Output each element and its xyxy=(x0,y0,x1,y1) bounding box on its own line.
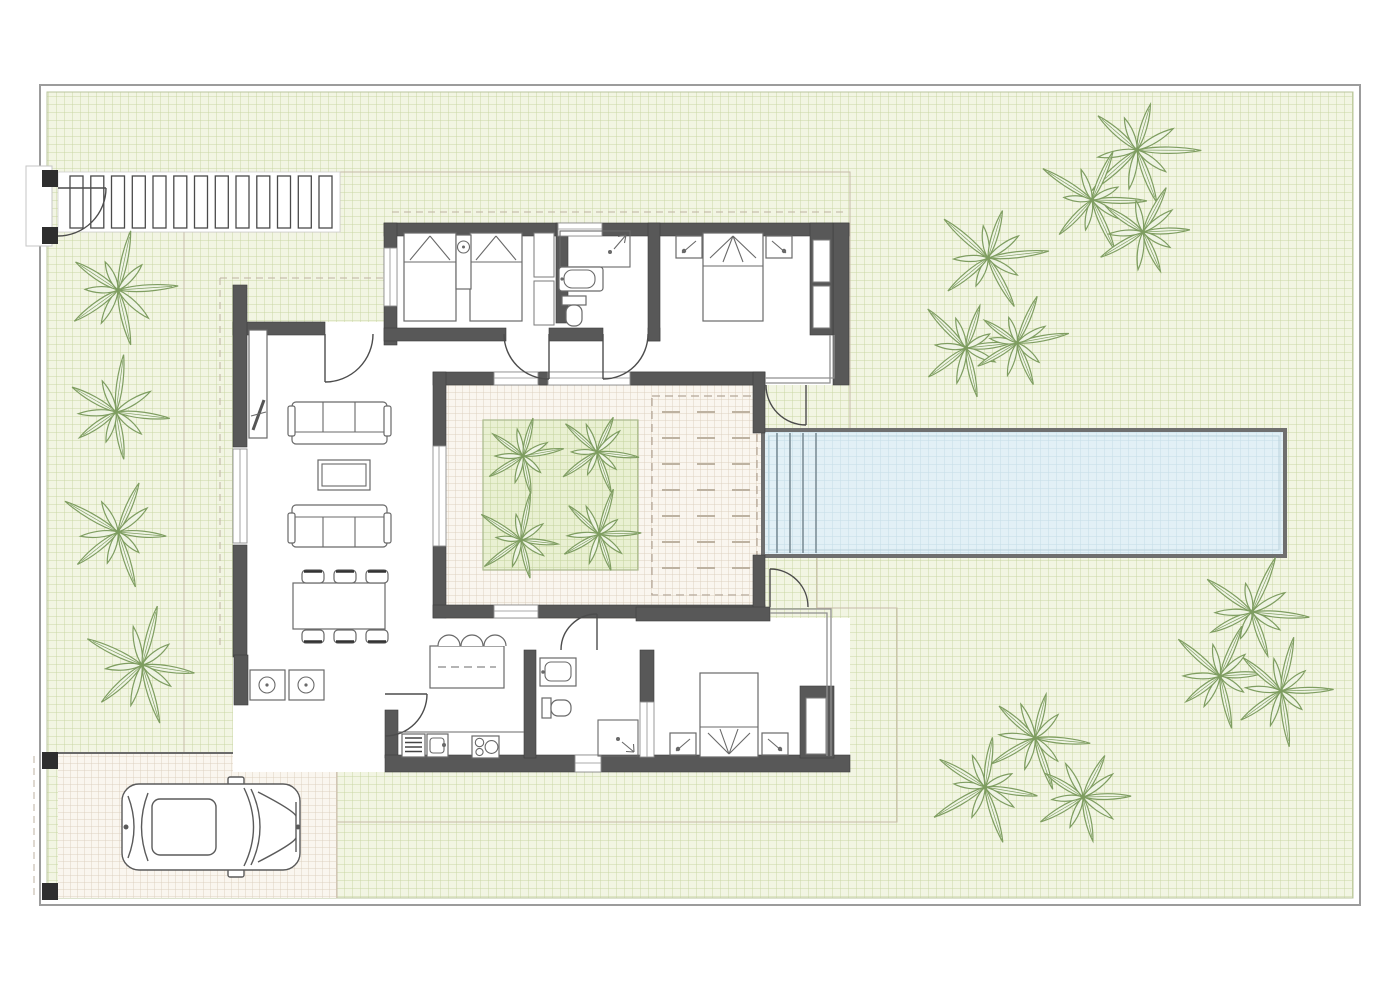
swimming-pool xyxy=(763,430,1285,556)
car xyxy=(122,777,300,877)
double-bed xyxy=(700,673,758,757)
pergola-slat xyxy=(112,176,125,228)
pergola-slat xyxy=(195,176,208,228)
pergola-slat xyxy=(174,176,187,228)
floor-plan-drawing xyxy=(0,0,1400,990)
kitchen-island xyxy=(430,635,506,688)
window xyxy=(233,449,247,543)
double-bed xyxy=(703,233,763,321)
pergola-slat xyxy=(257,176,270,228)
twin-bed xyxy=(470,233,522,321)
gate-post xyxy=(42,170,58,187)
gate-post xyxy=(42,227,58,244)
twin-bed xyxy=(404,233,456,321)
sofa xyxy=(288,402,391,444)
entry-walkway xyxy=(58,172,340,232)
floor-plan-canvas xyxy=(0,0,1400,990)
nightstand xyxy=(670,733,696,755)
pergola-slat xyxy=(153,176,166,228)
hob xyxy=(472,736,499,758)
window xyxy=(640,702,654,757)
nightstand xyxy=(762,733,788,755)
window xyxy=(433,446,446,546)
bathtub xyxy=(559,267,603,291)
pergola-slat xyxy=(70,176,83,228)
window xyxy=(548,372,630,385)
window xyxy=(494,372,538,385)
coffee-table xyxy=(318,460,370,490)
nightstand xyxy=(456,235,471,289)
window xyxy=(575,755,601,772)
island-stools xyxy=(438,635,506,646)
window xyxy=(384,248,397,306)
pergola-slat xyxy=(236,176,249,228)
sofa xyxy=(288,505,391,547)
nightstand xyxy=(676,236,702,258)
dishwasher xyxy=(402,734,425,757)
pergola-slat xyxy=(298,176,311,228)
window xyxy=(558,223,602,236)
pergola-slat xyxy=(319,176,332,228)
washbasin xyxy=(540,658,576,686)
tv-board xyxy=(249,330,267,438)
pergola-slat xyxy=(132,176,145,228)
pergola-slat xyxy=(215,176,228,228)
window xyxy=(494,605,538,618)
gate-post xyxy=(42,752,58,769)
pergola-slat xyxy=(278,176,291,228)
nightstand xyxy=(766,236,792,258)
toilet xyxy=(542,698,571,718)
gate-post xyxy=(42,883,58,900)
dining-table xyxy=(293,583,385,629)
kitchen-sink xyxy=(427,734,448,757)
